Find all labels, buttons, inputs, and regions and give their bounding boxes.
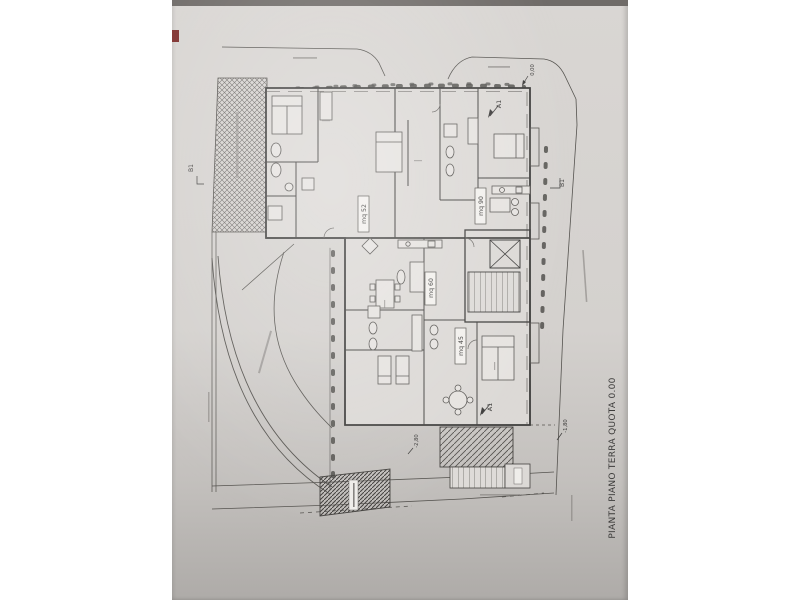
section-marker-b1-left: B1 [188, 164, 195, 172]
existing-building-hatched [212, 78, 267, 232]
section-marker-a1-top: A1 [495, 100, 503, 109]
apartment-label-mq60: mq 60 [428, 278, 435, 298]
quota-minus-180: -1,80 [563, 419, 569, 432]
driveway-crossing-label-smudge [353, 483, 355, 507]
drawing-title: PIANTA PIANO TERRA QUOTA 0.00 [608, 377, 618, 538]
apartment-label-mq45: mq 45 [458, 336, 465, 356]
stairs-core [468, 272, 520, 312]
apartment-label-mq52: mq 52 [361, 204, 368, 224]
quota-minus-280: -2,80 [414, 434, 420, 447]
page-background: mq 52 mq 90 mq 60 mq 45 A1 A1 B1 B1 [0, 0, 800, 600]
balconies [530, 128, 539, 363]
entrance-area [320, 427, 530, 516]
apartment-label-mq90: mq 90 [478, 196, 485, 216]
sidewalk-curve-left [222, 47, 385, 76]
quota-street-level: 0,00 [530, 64, 536, 76]
entrance-stairs [450, 467, 505, 488]
road-edge-right [556, 99, 577, 495]
floor-plan-drawing: mq 52 mq 90 mq 60 mq 45 A1 A1 B1 B1 [172, 0, 628, 600]
floor-plan-photo: mq 52 mq 90 mq 60 mq 45 A1 A1 B1 B1 [172, 0, 628, 600]
entrance-canopy-hatched [440, 427, 513, 467]
technical-room-label-smudge [514, 468, 522, 484]
driveway-ramp [212, 244, 332, 494]
ramp-label-smudge [258, 331, 272, 374]
hedge-right-column [542, 148, 546, 332]
existing-building-label-smudge [236, 112, 238, 178]
street-name-smudge [582, 250, 587, 302]
